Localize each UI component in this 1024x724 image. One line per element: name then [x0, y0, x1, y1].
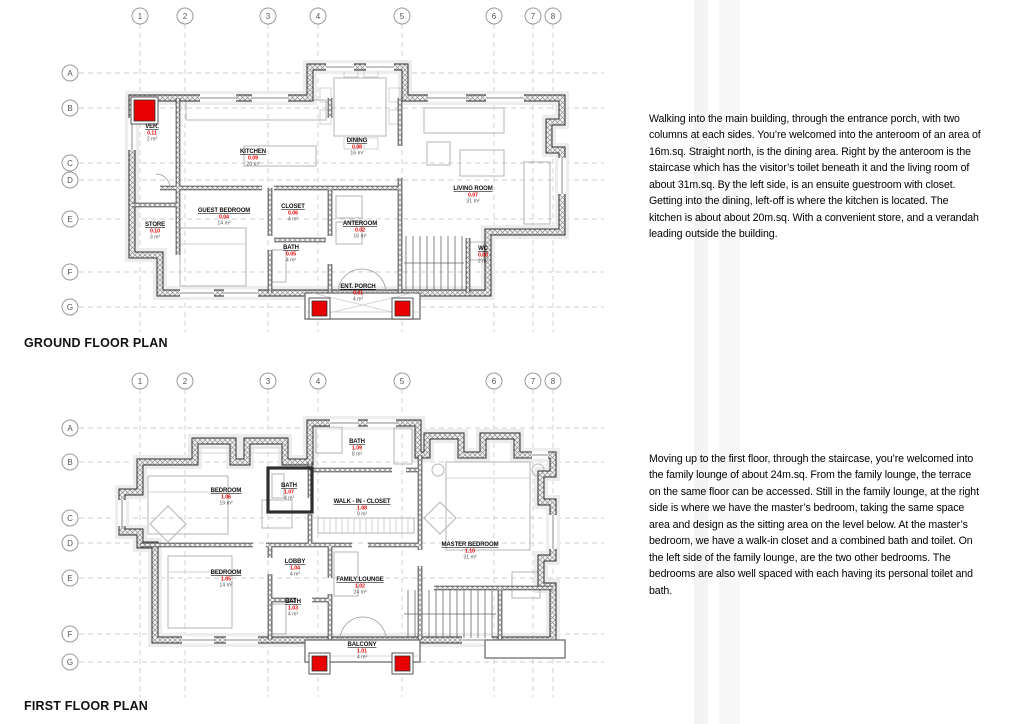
grid-bubble-label-F: F [68, 630, 73, 639]
grid-bubble-label-D: D [67, 176, 73, 185]
grid-bubble-label-8: 8 [551, 12, 556, 21]
room-labels-layer: VER.0.112 m²STORE0.103 m²KITCHEN0.0920 m… [145, 124, 493, 303]
room-area: 16 m² [353, 234, 367, 240]
grid-bubble-label-B: B [67, 104, 72, 113]
grid-bubble-label-E: E [67, 215, 72, 224]
room-name: GUEST BEDROOM [198, 208, 250, 214]
room-name: BATH [281, 483, 297, 489]
grid-bubble-label-7: 7 [531, 12, 536, 21]
room-label: VER.0.112 m² [145, 124, 159, 143]
grid-bubble-label-A: A [67, 424, 73, 433]
room-name: CLOSET [281, 204, 305, 210]
room-label: WALK - IN - CLOSET1.089 m² [334, 499, 391, 518]
room-name: WC [478, 246, 489, 252]
column-marker [312, 656, 327, 671]
room-area: 4 m² [288, 217, 299, 223]
living-armchair [427, 142, 450, 165]
room-name: BATH [349, 439, 365, 445]
first-floor-description: Moving up to the first floor, through th… [649, 451, 983, 600]
grid-bubble-label-4: 4 [316, 12, 321, 21]
room-label: MASTER BEDROOM1.1031 m² [442, 542, 499, 561]
room-area: 3 m² [150, 235, 161, 241]
room-name: MASTER BEDROOM [442, 542, 499, 548]
grid-bubble-label-2: 2 [183, 377, 188, 386]
anteroom-cabinet-1 [336, 196, 362, 218]
ground-floor-plan-drawing: 12345678ABCDEFG [0, 0, 630, 358]
room-name: BEDROOM [211, 570, 242, 576]
grid-bubble-label-2: 2 [183, 12, 188, 21]
grid-bubble-label-C: C [67, 514, 73, 523]
grid-bubble-label-C: C [67, 159, 73, 168]
grid-bubble-label-6: 6 [492, 377, 497, 386]
room-name: VER. [145, 124, 159, 130]
room-name: STORE [145, 222, 165, 228]
room-name: BATH [285, 599, 301, 605]
room-label: CLOSET0.064 m² [281, 204, 305, 223]
room-name: BEDROOM [211, 488, 242, 494]
walkin-wardrobe-lines [324, 518, 408, 533]
room-label: BATH1.074 m² [281, 483, 297, 502]
grid-bubble-label-G: G [67, 658, 73, 667]
room-name: KITCHEN [240, 149, 266, 155]
bedroom14-bed [168, 556, 232, 628]
room-area: 14 m² [217, 221, 231, 227]
column-marker [312, 301, 327, 316]
page-fold-band-1 [694, 0, 708, 724]
room-label: BEDROOM1.0619 m² [211, 488, 242, 507]
stairs [404, 236, 464, 290]
room-name: BATH [283, 245, 299, 251]
first-floor-plan-title: FIRST FLOOR PLAN [24, 699, 148, 713]
room-area: 9 m² [357, 512, 368, 518]
room-area: 31 m² [463, 555, 477, 561]
grid-bubble-label-5: 5 [400, 12, 405, 21]
room-area: 16 m² [350, 151, 364, 157]
grid-bubble-label-7: 7 [531, 377, 536, 386]
grid-layer: 12345678ABCDEFG [62, 8, 604, 332]
room-area: 31 m² [466, 199, 480, 205]
bath9-tub [394, 428, 412, 464]
bedroom19-bed [148, 476, 228, 534]
master-bed [446, 462, 530, 550]
terrace-landing [485, 640, 565, 658]
room-label: ANTEROOM0.0216 m² [343, 221, 377, 240]
column-marker [134, 100, 155, 121]
room-label: BATH1.034 m² [285, 599, 301, 618]
page: 12345678ABCDEFG [0, 0, 1024, 724]
column-marker [395, 656, 410, 671]
room-area: 24 m² [353, 590, 367, 596]
page-fold-band-2 [719, 0, 740, 724]
grid-bubble-label-4: 4 [316, 377, 321, 386]
first-floor-plan-drawing: 12345678ABCDEFG [0, 358, 630, 724]
grid-bubble-label-1: 1 [138, 12, 143, 21]
room-name: LIVING ROOM [453, 186, 492, 192]
bedroom19-rug [150, 506, 186, 542]
room-area: 4 m² [353, 297, 364, 303]
guest-bed [180, 228, 246, 286]
room-name: ENT. PORCH [340, 284, 375, 290]
grid-bubble-label-E: E [67, 574, 72, 583]
grid-bubble-label-F: F [68, 268, 73, 277]
room-label: FAMILY LOUNGE1.0224 m² [336, 577, 383, 596]
grid-bubble-label-D: D [67, 539, 73, 548]
room-name: ANTEROOM [343, 221, 377, 227]
room-label: BATH1.098 m² [349, 439, 365, 458]
room-label: GUEST BEDROOM0.0414 m² [198, 208, 250, 227]
room-label: BATH0.054 m² [283, 245, 299, 264]
room-label: LOBBY1.044 m² [285, 559, 306, 578]
grid-bubble-label-3: 3 [266, 12, 271, 21]
room-label: LIVING ROOM0.0731 m² [453, 186, 492, 205]
grid-bubble-label-B: B [67, 458, 72, 467]
room-area: 4 m² [357, 655, 368, 661]
bath3-tub [272, 604, 286, 634]
room-area: 8 m² [352, 452, 363, 458]
master-lamp-left [432, 464, 444, 476]
room-area: 4 m² [286, 258, 297, 264]
room-name: FAMILY LOUNGE [336, 577, 383, 583]
bath9-shower [316, 427, 342, 453]
grid-bubble-label-A: A [67, 69, 73, 78]
grid-bubble-label-G: G [67, 303, 73, 312]
living-sofa [424, 108, 504, 133]
room-label: WC0.032 m² [478, 246, 489, 265]
plan-shadow-wash [122, 423, 553, 640]
room-name: DINING [347, 138, 368, 144]
room-area: 2 m² [147, 137, 158, 143]
room-area: 20 m² [246, 162, 260, 168]
dining-table [334, 78, 386, 136]
column-marker [395, 301, 410, 316]
room-area: 2 m² [478, 259, 489, 265]
ground-floor-description: Walking into the main building, through … [649, 111, 983, 243]
grid-bubble-label-5: 5 [400, 377, 405, 386]
room-area: 4 m² [290, 572, 301, 578]
grid-bubble-label-8: 8 [551, 377, 556, 386]
room-area: 4 m² [284, 496, 295, 502]
grid-bubble-label-6: 6 [492, 12, 497, 21]
bath-tub [272, 250, 286, 282]
room-label: DINING0.0816 m² [347, 138, 368, 157]
room-area: 19 m² [219, 501, 233, 507]
room-name: BALCONY [348, 642, 377, 648]
room-name: WALK - IN - CLOSET [334, 499, 391, 505]
room-area: 14 m² [219, 583, 233, 589]
room-label: STORE0.103 m² [145, 222, 165, 241]
room-name: LOBBY [285, 559, 306, 565]
grid-bubble-label-3: 3 [266, 377, 271, 386]
grid-bubble-label-1: 1 [138, 377, 143, 386]
room-area: 4 m² [288, 612, 299, 618]
living-side-couch [524, 162, 550, 224]
ground-floor-plan-title: GROUND FLOOR PLAN [24, 336, 168, 350]
room-label: BEDROOM1.0514 m² [211, 570, 242, 589]
